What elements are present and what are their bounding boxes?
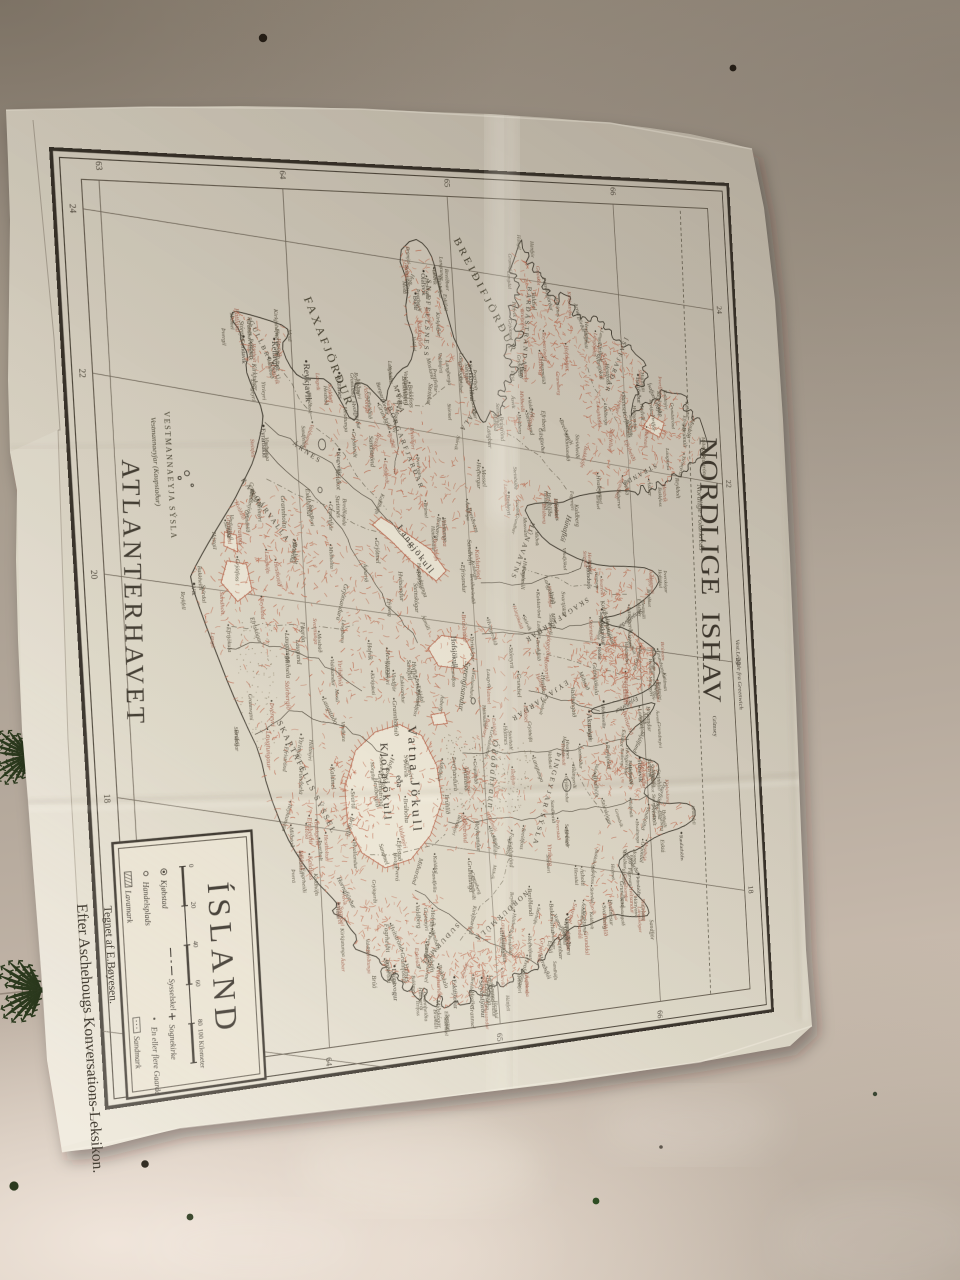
svg-text:Kaldmel: Kaldmel [328,766,335,790]
svg-text:ATLANTERHAVET: ATLANTERHAVET [115,459,149,727]
svg-text:Eskiland: Eskiland [442,1010,448,1031]
svg-text:Reykfell: Reykfell [179,590,188,610]
svg-text:Ytriberg: Ytriberg [546,844,554,868]
svg-text:Eskisel: Eskisel [522,704,529,723]
svg-text:Þverholt: Þverholt [471,368,478,390]
svg-text:Grímsey: Grímsey [711,716,717,737]
svg-text:Vindvík: Vindvík [638,403,644,421]
svg-text:Hvítsandur: Hvítsandur [631,404,638,431]
svg-text:Grjótmel: Grjótmel [373,540,380,564]
svg-text:Ytrimýri: Ytrimýri [255,501,263,522]
svg-text:Vindkota: Vindkota [339,721,346,742]
svg-text:Grjótmel: Grjótmel [247,482,253,502]
svg-text:Laugvík: Laugvík [485,668,492,689]
svg-text:Grjótfoss: Grjótfoss [233,559,241,582]
svg-text:22: 22 [725,480,733,488]
svg-text:Brúmýri: Brúmýri [404,247,410,265]
svg-text:Þvereyri: Þvereyri [268,701,277,727]
svg-text:Lavamark: Lavamark [123,889,134,925]
svg-text:60: 60 [193,980,200,988]
svg-text:Eskibær: Eskibær [636,598,642,618]
svg-text:Brúsel: Brúsel [595,495,601,510]
svg-text:Grjótsandur: Grjótsandur [563,776,570,804]
svg-text:Brúholta: Brúholta [402,798,410,823]
svg-text:24: 24 [715,306,723,314]
svg-text:Brúmúli: Brúmúli [681,427,687,448]
svg-text:18: 18 [102,794,113,804]
svg-text:Þvervík: Þvervík [402,759,409,779]
svg-text:Mosjökul: Mosjökul [506,933,513,956]
svg-text:Grundá: Grundá [576,919,583,939]
svg-text:Ytrihöfnið: Ytrihöfnið [336,660,344,686]
svg-text:Valdkoti: Valdkoti [546,751,553,769]
svg-text:Húnaflói: Húnaflói [559,513,574,543]
svg-text:Sandholt: Sandholt [218,591,226,615]
svg-text:Reykmýri: Reykmýri [656,681,662,701]
svg-text:Ásbær: Ásbær [339,957,346,973]
svg-text:Sandmark: Sandmark [132,1036,143,1071]
svg-text:Grannfell: Grannfell [690,806,695,826]
svg-text:Vest.Lengde fra Greenwich: Vest.Lengde fra Greenwich [734,639,744,710]
svg-text:Grannfjör: Grannfjör [327,504,334,532]
svg-text:Kaldkot: Kaldkot [334,468,341,490]
svg-text:Raufarhöfn: Raufarhöfn [678,835,686,861]
svg-text:Brúvatn: Brúvatn [659,642,665,661]
svg-text:Svartvík: Svartvík [598,578,603,596]
svg-text:Mosvatn: Mosvatn [521,516,528,537]
svg-text:64: 64 [324,1057,334,1067]
svg-text:Háttmel: Háttmel [485,685,492,704]
svg-text:Þverskógar: Þverskógar [662,569,668,593]
svg-text:Kjøbstad: Kjøbstad [159,878,170,909]
svg-text:Kaldmýri: Kaldmýri [662,389,668,410]
svg-text:66: 66 [656,1010,664,1019]
svg-text:Þórshöfn: Þórshöfn [635,876,642,897]
svg-text:22: 22 [77,369,88,378]
svg-text:Steinsel: Steinsel [620,394,626,413]
svg-text:Efriá: Efriá [509,370,514,382]
svg-text:Brúströnd: Brúströnd [384,959,391,984]
svg-text:Eskidal: Eskidal [620,868,626,886]
svg-text:Mosá: Mosá [333,688,340,703]
svg-text:80: 80 [196,1019,203,1027]
svg-text:Reykland: Reykland [258,597,266,620]
svg-text:Efriberg: Efriberg [385,598,391,618]
svg-text:Laugtungaur: Laugtungaur [264,730,272,769]
svg-text:Kaldholt: Kaldholt [588,911,594,931]
svg-text:Mossel: Mossel [480,468,487,487]
svg-text:Grannsandur: Grannsandur [489,983,497,1018]
svg-text:Reyknes: Reyknes [246,316,253,336]
svg-text:Grundmýri: Grundmýri [656,722,663,749]
svg-text:Akranes: Akranes [335,375,344,399]
svg-text:0: 0 [187,864,194,868]
svg-text:Hesttunga: Hesttunga [341,405,349,432]
svg-text:20: 20 [89,570,100,580]
svg-text:40: 40 [191,940,198,948]
svg-text:Moshöfn: Moshöfn [650,769,655,788]
svg-text:Hestland: Hestland [423,277,430,300]
svg-text:Sandá: Sandá [385,400,392,414]
svg-text:66: 66 [608,187,617,196]
svg-text:NORDLIGE ISHAV: NORDLIGE ISHAV [693,437,726,704]
svg-text:Grjótkot: Grjótkot [534,266,541,286]
svg-text:Vík: Vík [189,586,196,596]
svg-text:Kaldgil: Kaldgil [326,383,333,403]
svg-text:Hofvík: Hofvík [429,909,437,928]
svg-text:64: 64 [278,170,288,179]
svg-text:Reykholt: Reykholt [674,477,680,499]
svg-text:Þverá: Þverá [289,868,296,884]
svg-text:Vestmannaeyjar (Kaupstaður): Vestmannaeyjar (Kaupstaður) [149,417,162,506]
svg-text:Brúá: Brúá [370,975,377,989]
svg-text:Langvík: Langvík [313,372,319,391]
svg-text:Langeyri: Langeyri [248,378,256,401]
svg-text:Hvítmýri: Hvítmýri [515,972,522,995]
svg-text:Miðstað: Miðstað [642,427,650,448]
svg-text:Steinnes: Steinnes [334,495,341,518]
svg-text:Grundsel: Grundsel [515,673,521,697]
svg-text:Sandhöfn: Sandhöfn [465,539,473,565]
svg-text:Kalddal: Kalddal [684,401,689,418]
svg-text:Hestvatn: Hestvatn [593,571,599,590]
svg-text:Bakkmel: Bakkmel [409,975,415,995]
svg-text:Ytrimúli: Ytrimúli [387,366,394,385]
svg-text:Sandfjör: Sandfjör [648,919,655,941]
svg-text:Brúmel: Brúmel [422,503,428,519]
svg-text:Ytrieyri: Ytrieyri [260,381,267,400]
svg-text:Brúbergi: Brúbergi [619,748,625,767]
svg-text:VESTMANNAEYJA SÝSLA: VESTMANNAEYJA SÝSLA [162,411,178,540]
svg-text:Kirkjuland: Kirkjuland [663,778,670,804]
svg-text:Laugá: Laugá [208,631,215,648]
svg-text:Langdal: Langdal [505,270,512,290]
svg-text:Steintunga: Steintunga [494,403,501,428]
svg-text:Sandhöfn: Sandhöfn [551,961,557,981]
svg-text:Stórholt: Stórholt [507,730,514,750]
svg-text:Hestberg: Hestberg [516,413,523,434]
svg-text:Svartgil: Svartgil [637,370,642,386]
svg-text:Grjótmel: Grjótmel [506,319,513,341]
svg-text:Laugmúli: Laugmúli [582,327,589,349]
svg-text:Þverá: Þverá [393,865,399,881]
svg-text:Eskivatn: Eskivatn [626,629,631,648]
svg-text:Vindjökul: Vindjökul [561,548,568,571]
svg-text:Miðsela: Miðsela [283,655,292,679]
svg-text:Háttvatn: Háttvatn [632,895,639,917]
svg-text:Brúfell: Brúfell [232,729,240,747]
svg-text:Grjótnes: Grjótnes [554,298,561,317]
svg-text:Háttfell: Háttfell [504,994,510,1012]
svg-text:Svartbær: Svartbær [550,931,556,950]
svg-text:Mosmel: Mosmel [552,497,559,516]
svg-text:Kirkjutunga: Kirkjutunga [338,927,346,958]
svg-text:Hvítfell: Hvítfell [647,658,652,675]
svg-text:Steinfell: Steinfell [248,439,257,458]
svg-text:Vindvík: Vindvík [246,341,253,360]
svg-text:20: 20 [189,901,196,908]
svg-text:Hvítmýri: Hvítmýri [408,426,415,449]
svg-text:Svartmýri: Svartmýri [383,661,390,685]
svg-text:Ásbærur: Ásbærur [615,489,623,510]
svg-text:24: 24 [67,204,78,214]
svg-text:Stórdal: Stórdal [588,887,594,904]
svg-text:Sysselskel: Sysselskel [167,978,178,1011]
svg-text:Háttmýri: Háttmýri [306,738,314,761]
svg-text:18: 18 [747,885,755,894]
svg-text:Langholt: Langholt [604,618,610,637]
svg-text:Eskiá: Eskiá [659,838,665,853]
svg-text:Hólar: Hólar [596,647,602,660]
svg-text:Grannsel: Grannsel [468,1005,475,1030]
svg-text:Svartjökul: Svartjökul [560,591,567,616]
svg-text:Svartá: Svartá [349,791,356,809]
svg-text:Breiðlanda: Breiðlanda [341,498,348,526]
svg-text:Bakkvík: Bakkvík [297,850,304,871]
svg-text:63: 63 [93,161,104,171]
svg-text:Stóreyri: Stóreyri [237,320,245,341]
svg-text:Valdsel: Valdsel [530,292,537,311]
svg-text:Valdholt: Valdholt [273,351,280,371]
svg-text:Steinberg: Steinberg [639,899,646,922]
svg-text:Steinheiði: Steinheiði [574,434,581,459]
svg-text:Háttgil: Háttgil [210,531,218,550]
svg-text:Steinhlíð: Steinhlíð [655,769,662,791]
svg-text:Vindmýri: Vindmýri [647,676,653,697]
svg-text:65: 65 [442,179,451,188]
svg-text:65: 65 [495,1032,504,1042]
svg-text:Stórnesa: Stórnesa [587,619,594,641]
svg-text:Grunddal: Grunddal [583,931,590,956]
svg-text:Mosholt: Mosholt [290,540,299,564]
svg-text:Stóreyrii: Stóreyrii [507,647,514,669]
svg-text:Valdsel: Valdsel [410,336,416,351]
svg-text:Hestmel: Hestmel [586,551,593,572]
svg-text:Háttfjör: Háttfjör [528,240,534,258]
svg-text:Grundsela: Grundsela [297,766,304,795]
svg-text:Granná: Granná [514,500,520,516]
svg-text:Vindtunga: Vindtunga [262,437,270,462]
svg-text:Kaldberg: Kaldberg [573,503,580,527]
svg-text:Þvergil: Þvergil [219,327,227,346]
svg-text:Mosnes: Mosnes [631,848,636,865]
